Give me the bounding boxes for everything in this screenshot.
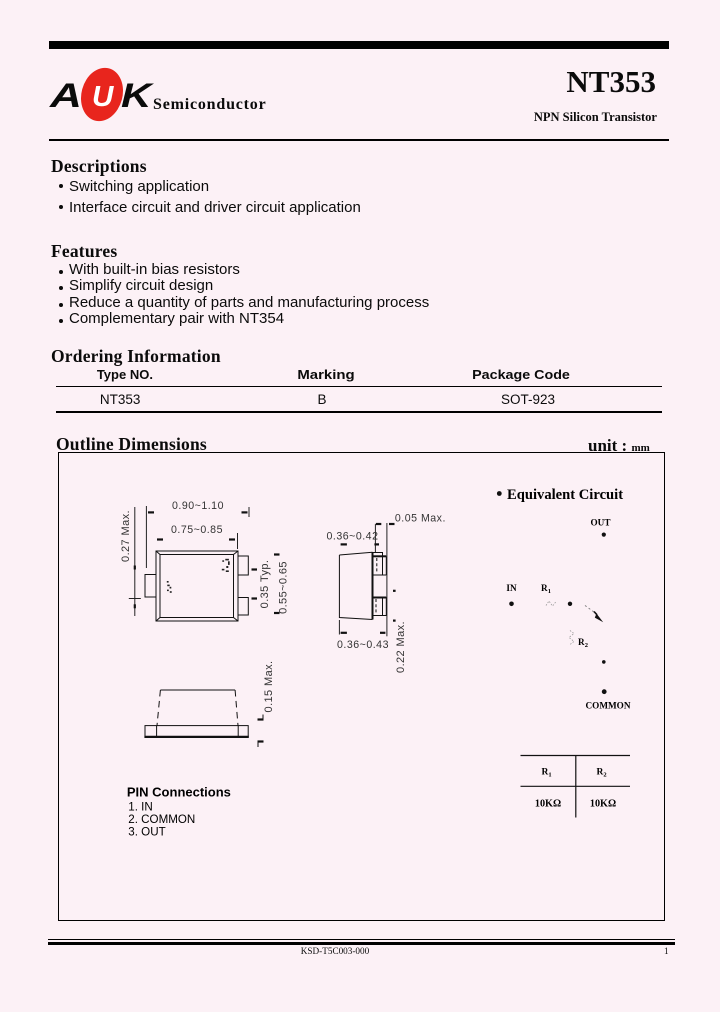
svg-text:1. IN: 1. IN bbox=[128, 801, 152, 814]
svg-text:0.55~0.65: 0.55~0.65 bbox=[278, 561, 290, 614]
svg-text:R1: R1 bbox=[541, 767, 551, 778]
svg-text:R1: R1 bbox=[541, 583, 551, 595]
svg-text:10KΩ: 10KΩ bbox=[535, 798, 561, 809]
svg-text:10KΩ: 10KΩ bbox=[590, 798, 616, 809]
svg-text:3. OUT: 3. OUT bbox=[128, 826, 165, 839]
svg-text:R2: R2 bbox=[596, 767, 606, 778]
svg-text:0.36~0.43: 0.36~0.43 bbox=[337, 639, 389, 651]
svg-text:0.22 Max.: 0.22 Max. bbox=[395, 621, 407, 673]
svg-text:Equivalent Circuit: Equivalent Circuit bbox=[507, 487, 623, 503]
svg-text:COMMON: COMMON bbox=[586, 700, 631, 710]
svg-text:0.05 Max.: 0.05 Max. bbox=[395, 513, 446, 525]
svg-text:0.36~0.42: 0.36~0.42 bbox=[327, 531, 379, 543]
svg-text:IN: IN bbox=[506, 583, 517, 593]
svg-text:0.35 Typ.: 0.35 Typ. bbox=[259, 560, 271, 609]
svg-text:OUT: OUT bbox=[591, 517, 611, 527]
svg-text:0.75~0.85: 0.75~0.85 bbox=[171, 524, 223, 536]
svg-text:2. COMMON: 2. COMMON bbox=[128, 813, 195, 826]
svg-text:0.27 Max.: 0.27 Max. bbox=[120, 510, 132, 562]
svg-text:0.15 Max.: 0.15 Max. bbox=[263, 661, 275, 713]
svg-text:PIN Connections: PIN Connections bbox=[127, 785, 231, 800]
svg-text:R2: R2 bbox=[578, 637, 588, 649]
svg-text:0.90~1.10: 0.90~1.10 bbox=[172, 500, 224, 512]
